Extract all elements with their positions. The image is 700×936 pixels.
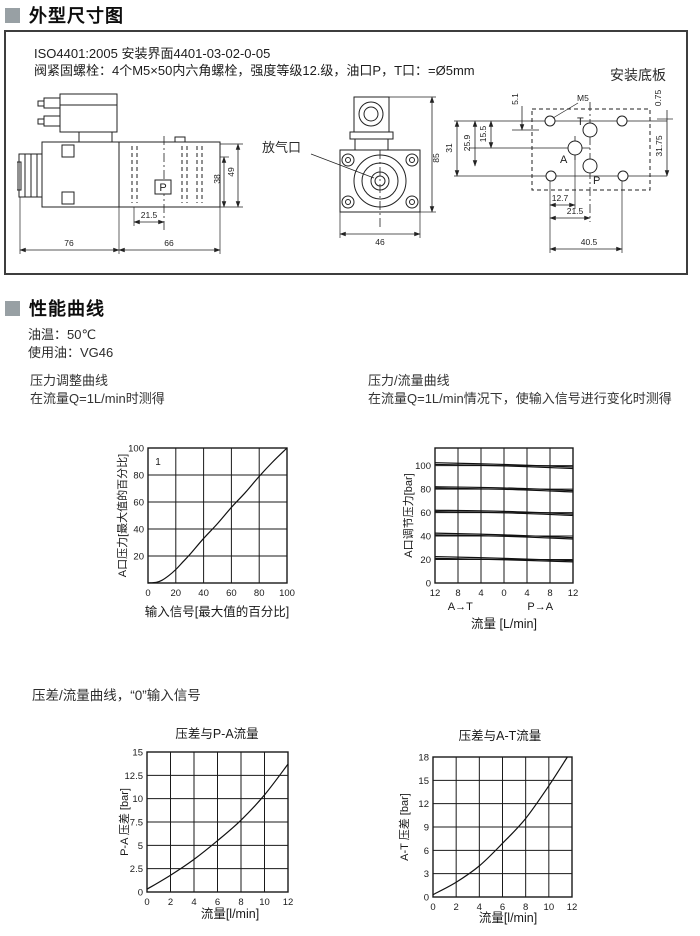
svg-text:20: 20 (171, 588, 182, 599)
front-view-drawing: 放气口 85 46 (262, 97, 441, 247)
chart-svg-dp-vs-pa-flow: 02468101202.557.51012.515压差与P-A流量流量[l/mi… (95, 720, 345, 934)
chart2-caption-title: 压力/流量曲线 (368, 372, 672, 390)
dim-49: 49 (226, 167, 236, 177)
svg-text:4: 4 (524, 588, 529, 599)
section2-title: 性能曲线 (29, 295, 105, 321)
svg-text:A口调节压力[bar]: A口调节压力[bar] (402, 473, 415, 557)
air-vent-label: 放气口 (262, 140, 301, 155)
oil-temp-line: 油温：50℃ (28, 326, 96, 344)
svg-text:压差与A-T流量: 压差与A-T流量 (459, 729, 542, 743)
side-view-drawing: P 21.5 76 66 38 49 (17, 94, 243, 254)
svg-text:20: 20 (420, 555, 431, 566)
section-bullet-icon (5, 301, 20, 316)
dim-40-5: 40.5 (581, 237, 598, 247)
svg-text:P→A: P→A (527, 601, 553, 613)
svg-text:20: 20 (133, 552, 144, 563)
svg-text:100: 100 (279, 588, 295, 599)
svg-text:10: 10 (259, 897, 270, 908)
series-curve-1 (148, 448, 287, 583)
solenoid-body (42, 142, 119, 207)
connector-body (60, 94, 117, 132)
chart2-caption-sub: 在流量Q=1L/min情况下，使输入信号进行变化时测得 (368, 390, 672, 408)
chart2-caption: 压力/流量曲线 在流量Q=1L/min情况下，使输入信号进行变化时测得 (368, 372, 672, 408)
svg-text:4: 4 (478, 588, 483, 599)
svg-text:15: 15 (418, 776, 429, 787)
svg-text:40: 40 (420, 532, 431, 543)
port-p-hole (583, 159, 597, 173)
bolt-hole (618, 171, 628, 181)
svg-text:12: 12 (568, 588, 579, 599)
svg-text:18: 18 (418, 753, 429, 764)
svg-text:15: 15 (132, 748, 143, 759)
svg-text:6: 6 (424, 846, 429, 857)
mounting-plate-drawing: 安装底板 T A P M5 (444, 67, 673, 253)
svg-text:0: 0 (424, 893, 429, 904)
svg-text:10: 10 (544, 902, 555, 913)
dim-21-5: 21.5 (141, 210, 158, 220)
chart-svg-pressure-flow-curve: 128404812020406080100流量 [L/min]A口调节压力[ba… (360, 432, 650, 642)
bolt-hole (617, 116, 627, 126)
svg-text:5: 5 (138, 841, 143, 852)
section1-header: 外型尺寸图 (5, 2, 124, 28)
section3-title: 压差/流量曲线，“0”输入信号 (32, 684, 201, 704)
svg-text:0: 0 (426, 579, 431, 590)
m5-label: M5 (577, 93, 589, 103)
port-a-label: A (560, 154, 568, 166)
svg-text:40: 40 (133, 525, 144, 536)
svg-text:8: 8 (455, 588, 460, 599)
dim-46: 46 (375, 237, 385, 247)
mounting-plate-label: 安装底板 (610, 67, 666, 83)
dim-31-75: 31.75 (654, 135, 664, 157)
dim-5-1: 5.1 (510, 93, 520, 105)
svg-text:0: 0 (430, 902, 435, 913)
technical-drawings: P 21.5 76 66 38 49 (17, 32, 689, 270)
svg-text:0: 0 (144, 897, 149, 908)
chart1-caption-sub: 在流量Q=1L/min时测得 (30, 390, 165, 408)
svg-text:60: 60 (420, 508, 431, 519)
svg-text:9: 9 (424, 823, 429, 834)
svg-text:100: 100 (415, 461, 431, 472)
svg-text:8: 8 (547, 588, 552, 599)
svg-text:80: 80 (420, 485, 431, 496)
svg-text:2: 2 (168, 897, 173, 908)
section-bullet-icon (5, 8, 20, 23)
svg-text:0: 0 (501, 588, 506, 599)
chart1-caption-title: 压力调整曲线 (30, 372, 165, 390)
svg-text:A口压力[最大值的百分比]: A口压力[最大值的百分比] (115, 454, 129, 577)
dim-0-75: 0.75 (653, 89, 663, 106)
svg-text:A-T 压差 [bar]: A-T 压差 [bar] (397, 793, 411, 861)
chart-dp-pa-flow: 02468101202.557.51012.515压差与P-A流量流量[l/mi… (95, 720, 345, 934)
chart1-caption: 压力调整曲线 在流量Q=1L/min时测得 (30, 372, 165, 408)
section2-header: 性能曲线 (5, 295, 105, 321)
svg-text:输入信号[最大值的百分比]: 输入信号[最大值的百分比] (145, 604, 289, 619)
dim-85: 85 (431, 153, 441, 163)
svg-text:0: 0 (138, 888, 143, 899)
section1-title: 外型尺寸图 (29, 2, 124, 28)
svg-text:3: 3 (424, 869, 429, 880)
svg-text:1: 1 (155, 457, 161, 468)
svg-text:7.5: 7.5 (130, 818, 143, 829)
chart-svg-dp-vs-at-flow: 0246810120369121518压差与A-T流量流量[l/min]A-T … (380, 720, 630, 934)
dim-25-9: 25.9 (462, 134, 472, 151)
oil-type-line: 使用油：VG46 (28, 344, 113, 362)
svg-text:12: 12 (418, 799, 429, 810)
dim-21-5b: 21.5 (567, 206, 584, 216)
svg-text:40: 40 (198, 588, 209, 599)
svg-text:12: 12 (430, 588, 441, 599)
svg-text:10: 10 (132, 794, 143, 805)
svg-text:12: 12 (283, 897, 294, 908)
svg-text:80: 80 (254, 588, 265, 599)
chart-svg-pressure-adjustment-curve: 020406080100204060801001输入信号[最大值的百分比]A口压… (60, 432, 320, 632)
svg-text:0: 0 (145, 588, 150, 599)
svg-text:4: 4 (191, 897, 196, 908)
chart-dp-at-flow: 0246810120369121518压差与A-T流量流量[l/min]A-T … (380, 720, 630, 934)
page: 外型尺寸图 ISO4401:2005 安装界面4401-03-02-0-05 阀… (0, 0, 700, 936)
chart-pressure-adjustment: 020406080100204060801001输入信号[最大值的百分比]A口压… (60, 432, 320, 632)
port-t-hole (583, 123, 597, 137)
dim-12-7: 12.7 (552, 193, 569, 203)
svg-text:2.5: 2.5 (130, 864, 143, 875)
dim-15-5: 15.5 (478, 125, 488, 142)
svg-text:60: 60 (226, 588, 237, 599)
dimension-box: ISO4401:2005 安装界面4401-03-02-0-05 阀紧固螺栓：4… (4, 30, 688, 275)
m5-leader (553, 103, 578, 118)
port-a-hole (568, 141, 582, 155)
svg-text:12.5: 12.5 (125, 771, 144, 782)
port-t-label: T (577, 116, 584, 128)
svg-text:12: 12 (567, 902, 578, 913)
svg-text:A→T: A→T (448, 601, 473, 613)
svg-text:100: 100 (128, 444, 144, 455)
svg-text:2: 2 (454, 902, 459, 913)
svg-text:流量[l/min]: 流量[l/min] (201, 907, 259, 921)
chart-pressure-flow: 128404812020406080100流量 [L/min]A口调节压力[ba… (360, 432, 650, 642)
svg-text:压差与P-A流量: 压差与P-A流量 (175, 727, 258, 741)
svg-text:流量 [L/min]: 流量 [L/min] (471, 617, 537, 631)
svg-text:60: 60 (133, 498, 144, 509)
dim-66: 66 (164, 238, 174, 248)
svg-text:流量[l/min]: 流量[l/min] (479, 911, 537, 925)
port-p-label: P (159, 182, 166, 194)
svg-text:80: 80 (133, 471, 144, 482)
dim-38: 38 (212, 174, 222, 184)
dim-31: 31 (444, 143, 454, 153)
bolt-hole (546, 171, 556, 181)
valve-body (119, 142, 220, 207)
svg-text:P-A 压差 [bar]: P-A 压差 [bar] (117, 788, 131, 856)
port-p-label: P (593, 175, 600, 187)
dim-76: 76 (64, 238, 74, 248)
